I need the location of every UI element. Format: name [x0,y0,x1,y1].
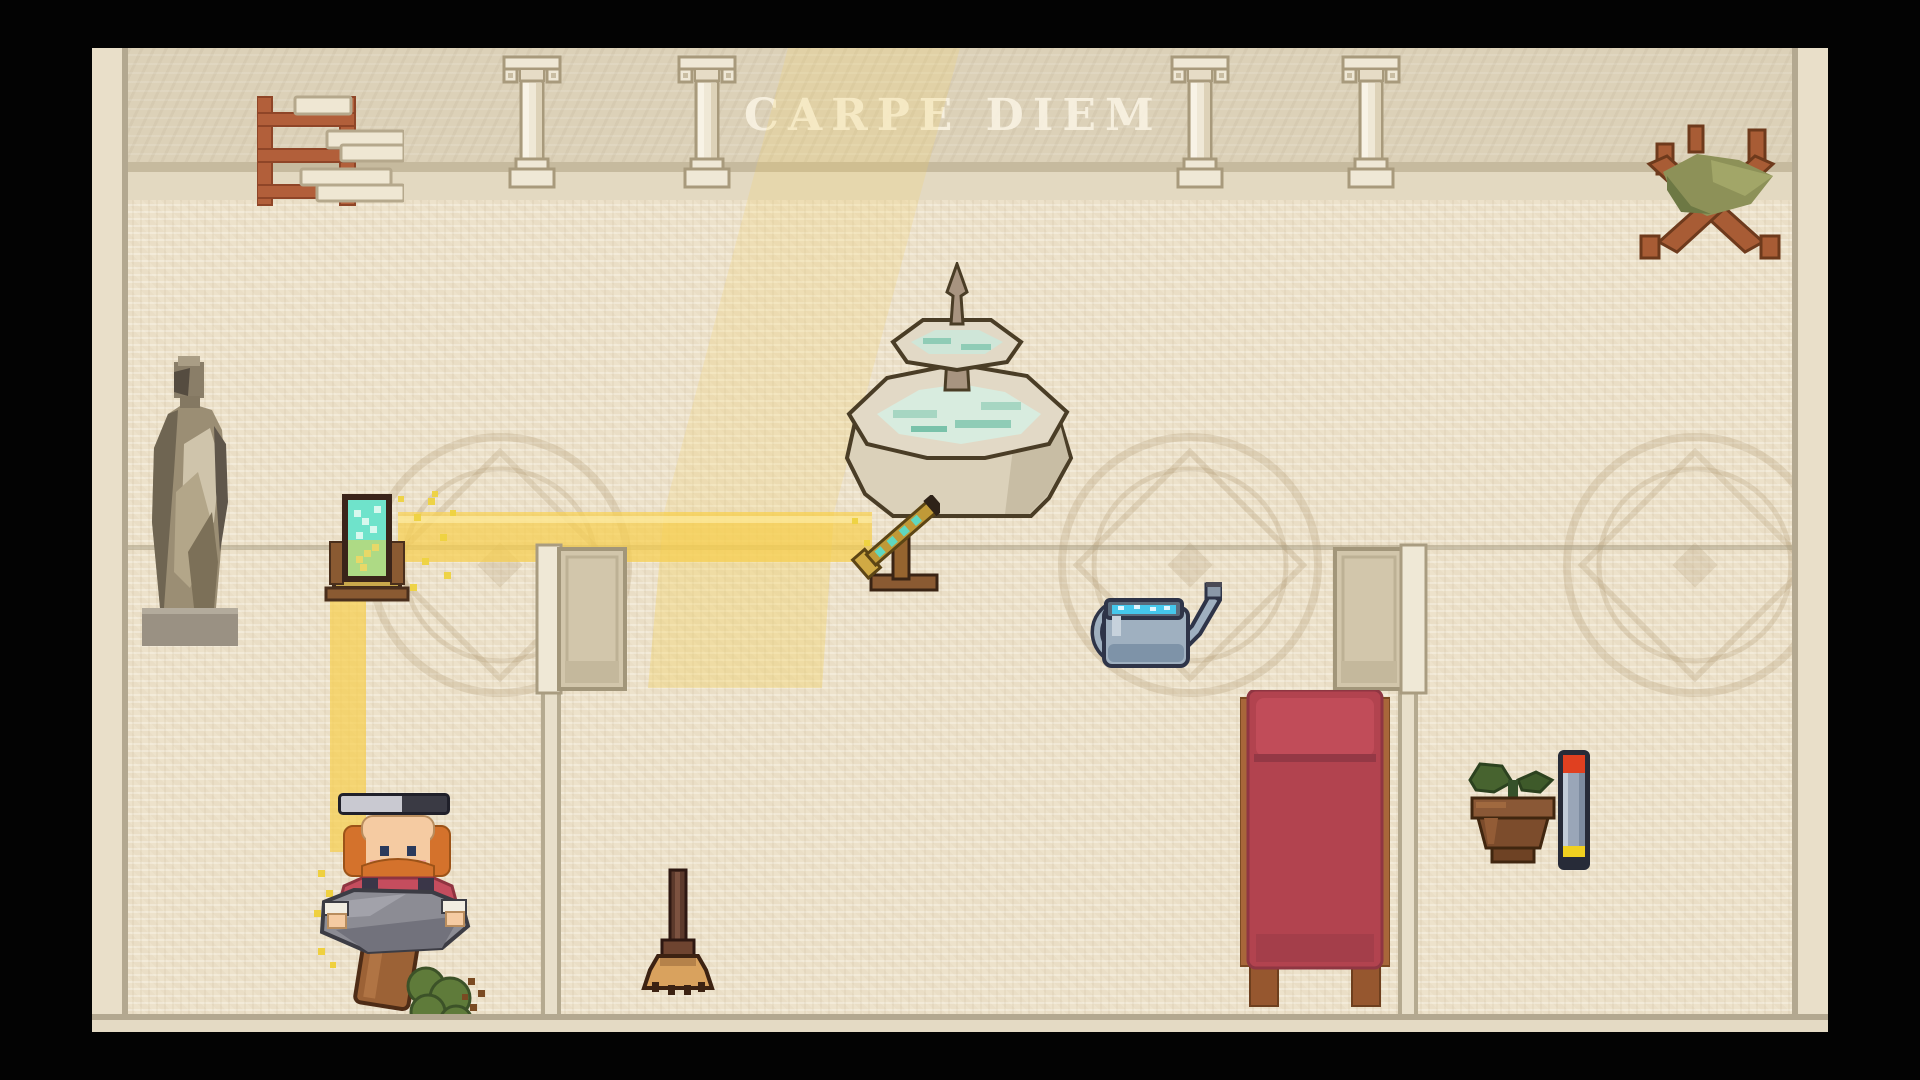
open-door-right[interactable] [1333,543,1428,695]
game-viewport[interactable]: CARPE DIEM [92,48,1828,1032]
watering-can[interactable] [1082,578,1222,672]
brass-telescope[interactable] [845,495,940,592]
gauge-foot [1563,857,1585,865]
stone-fountain[interactable] [835,262,1080,525]
red-bed[interactable] [1240,690,1390,1010]
gardener-character[interactable] [310,790,490,1032]
level-gauge[interactable] [1558,750,1590,870]
character-progress-bar [338,793,450,815]
right-wall-edge [1792,48,1828,1032]
standing-mirror[interactable] [322,492,412,602]
gauge-bottom-segment [1563,846,1585,857]
potted-seedling[interactable] [1468,752,1558,868]
gauge-body-segment [1563,773,1585,846]
bottom-wall-edge [92,1014,1828,1032]
character-progress-fill [341,796,402,812]
broom[interactable] [640,868,716,1000]
letterbox: CARPE DIEM [0,0,1920,1080]
open-door-left[interactable] [535,543,627,695]
toga-statue[interactable] [128,352,252,648]
gauge-top-segment [1563,755,1585,773]
left-wall-edge [92,48,128,1032]
